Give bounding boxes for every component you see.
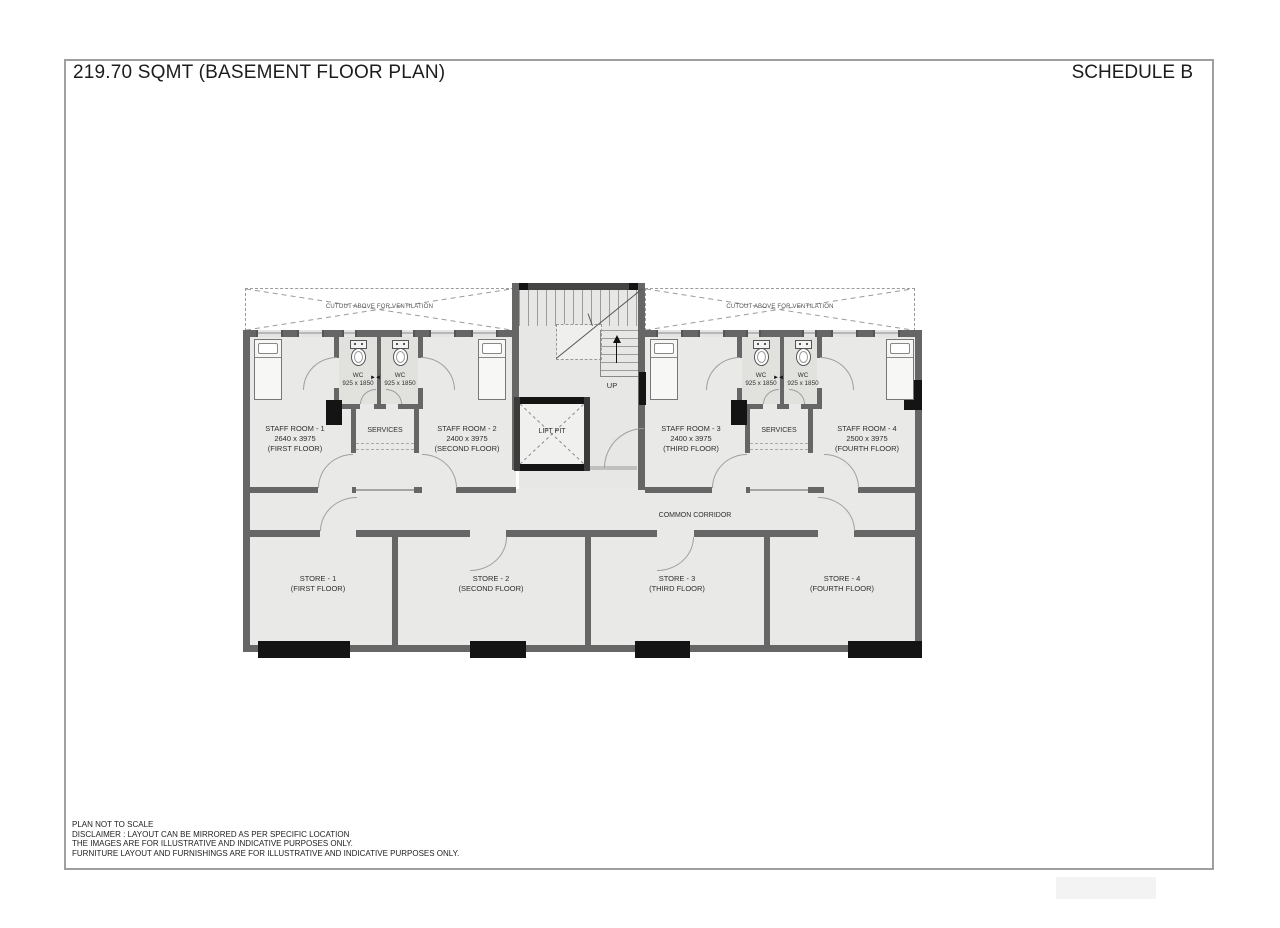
toilet-icon [793, 340, 813, 367]
wall-store-top [506, 530, 657, 537]
window [656, 330, 683, 337]
disclaimer-line: PLAN NOT TO SCALE [72, 820, 459, 830]
wall-wc-bottom-left [374, 404, 386, 409]
room-wc-4-label: WC925 x 1850 [781, 372, 825, 388]
window [297, 330, 324, 337]
watermark [1056, 877, 1156, 899]
wall-store-divider-3 [764, 535, 770, 645]
lift-pit-label: LIFT PIT [520, 428, 584, 435]
ventilation-note: CUTOUT ABOVE FOR VENTILATION [246, 304, 513, 310]
store-window-bar [470, 641, 526, 658]
room-services-left-label: SERVICES [355, 426, 415, 435]
wall-corridor-top [414, 487, 422, 493]
lift-wall-top [514, 397, 590, 404]
page-title: 219.70 SQMT (BASEMENT FLOOR PLAN) [73, 62, 445, 84]
wall-store-top [694, 530, 818, 537]
wall-store-top [356, 530, 470, 537]
lift-wall-right [584, 397, 590, 471]
bed [650, 339, 678, 400]
window [831, 330, 858, 337]
wall-corridor-top [858, 487, 922, 493]
window [400, 330, 415, 337]
corridor-label: COMMON CORRIDOR [645, 511, 745, 520]
window [802, 330, 817, 337]
room-services-right-label: SERVICES [749, 426, 809, 435]
wall-wc-sr2 [418, 388, 423, 404]
column [326, 400, 342, 425]
wall-wc-sr4 [817, 388, 822, 404]
wall-wc-bottom-left [398, 404, 423, 409]
stair-landing [556, 324, 602, 360]
wall-sr1-wc [334, 337, 339, 358]
wall-wc-divider-right [780, 337, 784, 404]
services-front-line-left [356, 489, 414, 491]
room-store-1-label: STORE - 1(FIRST FLOOR) [268, 574, 368, 594]
up-label: UP [600, 381, 624, 391]
window [429, 330, 456, 337]
wall-stair-top [512, 283, 645, 290]
window [256, 330, 283, 337]
room-staff-3-label: STAFF ROOM - 32400 x 3975(THIRD FLOOR) [646, 424, 736, 454]
wall-store-divider-2 [585, 535, 591, 645]
wall-corridor-top [456, 487, 516, 493]
lift-pit: LIFT PIT [520, 404, 584, 464]
window [698, 330, 725, 337]
bed [478, 339, 506, 400]
column [731, 400, 747, 425]
bed [254, 339, 282, 400]
room-store-2-label: STORE - 2(SECOND FLOOR) [441, 574, 541, 594]
window [746, 330, 761, 337]
toilet-icon [390, 340, 410, 367]
wall-store-top [854, 530, 922, 537]
stair-flight-upper [519, 290, 638, 326]
ventilation-cutout-left: CUTOUT ABOVE FOR VENTILATION [245, 288, 514, 331]
ventilation-cutout-right: CUTOUT ABOVE FOR VENTILATION [645, 288, 915, 331]
wall-wc-bottom-right [777, 404, 789, 409]
column-stair-right [639, 372, 646, 405]
window [471, 330, 498, 337]
wall-store-divider-1 [392, 535, 398, 645]
wall-store-top [243, 530, 320, 537]
up-arrow-shaft [616, 342, 617, 363]
store-window-bar [848, 641, 922, 658]
room-staff-1-label: STAFF ROOM - 12640 x 3975(FIRST FLOOR) [250, 424, 340, 454]
room-wc-1-label: WC925 x 1850 [336, 372, 380, 388]
room-wc-2-label: WC925 x 1850 [378, 372, 422, 388]
page: 219.70 SQMT (BASEMENT FLOOR PLAN) SCHEDU… [0, 0, 1280, 928]
wall-corridor-top [645, 487, 712, 493]
window [873, 330, 900, 337]
lift-wall-bottom [514, 464, 590, 471]
wall-corridor-top [808, 487, 824, 493]
disclaimer-line: THE IMAGES ARE FOR ILLUSTRATIVE AND INDI… [72, 839, 459, 849]
wall-sr3-wc [737, 337, 742, 358]
services-dashed-line [356, 443, 414, 444]
services-dashed-line [750, 443, 808, 444]
schedule-label: SCHEDULE B [993, 62, 1193, 84]
room-staff-4-label: STAFF ROOM - 42500 x 3975(FOURTH FLOOR) [822, 424, 912, 454]
wall-wc-sr4 [817, 337, 822, 358]
window [342, 330, 357, 337]
room-store-4-label: STORE - 4(FOURTH FLOOR) [792, 574, 892, 594]
room-store-3-label: STORE - 3(THIRD FLOOR) [627, 574, 727, 594]
services-dashed-line [356, 449, 414, 450]
ventilation-note: CUTOUT ABOVE FOR VENTILATION [646, 304, 914, 310]
wall-corridor-top [243, 487, 318, 493]
stair-flight-divider [600, 330, 601, 377]
bed [886, 339, 914, 400]
room-staff-2-label: STAFF ROOM - 22400 x 3975(SECOND FLOOR) [422, 424, 512, 454]
store-window-bar [258, 641, 350, 658]
toilet-icon [348, 340, 368, 367]
up-arrow-icon [613, 335, 621, 343]
room-wc-3-label: WC925 x 1850 [739, 372, 783, 388]
store-window-bar [635, 641, 690, 658]
disclaimer-block: PLAN NOT TO SCALE DISCLAIMER : LAYOUT CA… [72, 820, 459, 858]
toilet-icon [751, 340, 771, 367]
wall-wc-sr2 [418, 337, 423, 358]
disclaimer-line: FURNITURE LAYOUT AND FURNISHINGS ARE FOR… [72, 849, 459, 859]
services-dashed-line [750, 449, 808, 450]
disclaimer-line: DISCLAIMER : LAYOUT CAN BE MIRRORED AS P… [72, 830, 459, 840]
stair-flight-divider [601, 376, 638, 377]
wall-wc-divider-left [377, 337, 381, 404]
services-front-line-right [750, 489, 808, 491]
